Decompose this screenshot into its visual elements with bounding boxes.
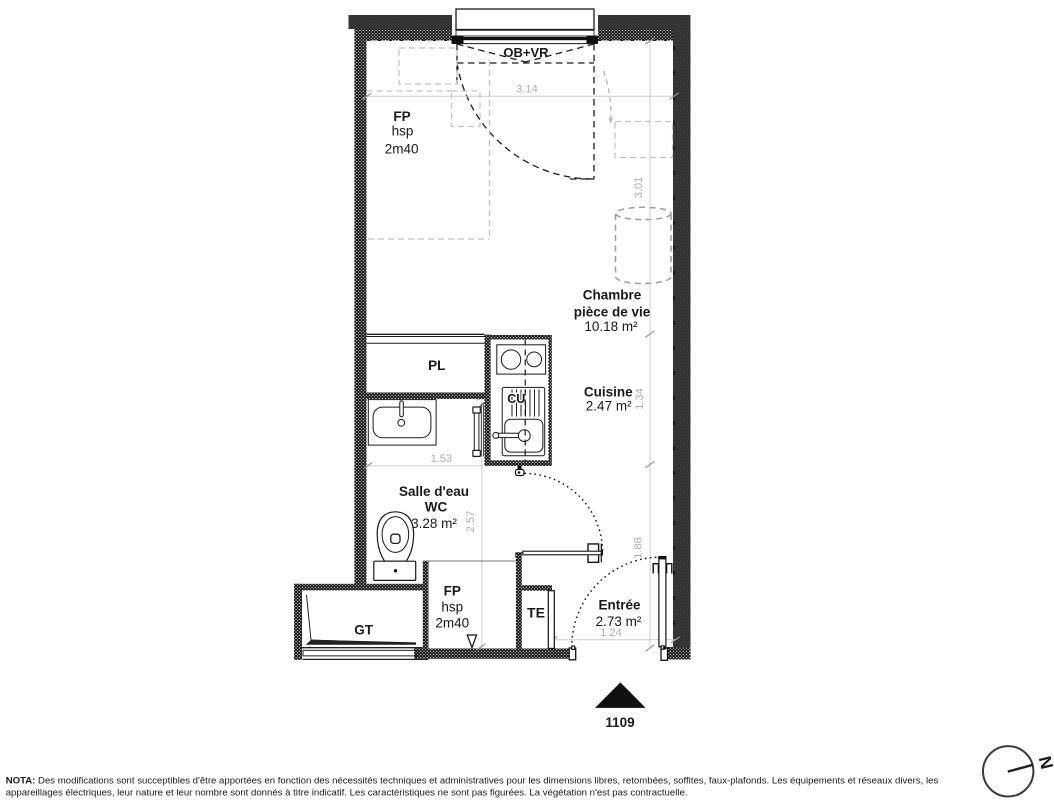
- svg-text:Cuisine: Cuisine: [584, 384, 633, 399]
- svg-text:hsp: hsp: [441, 599, 463, 614]
- svg-text:3.14: 3.14: [516, 84, 537, 96]
- svg-text:1.88: 1.88: [633, 537, 645, 558]
- svg-text:OB+VR: OB+VR: [503, 45, 549, 60]
- svg-text:PL: PL: [428, 358, 445, 373]
- svg-text:Chambre: Chambre: [583, 287, 642, 302]
- svg-text:2.57: 2.57: [465, 511, 477, 532]
- svg-text:10.18 m²: 10.18 m²: [584, 319, 638, 334]
- svg-text:2.73 m²: 2.73 m²: [596, 614, 642, 629]
- svg-text:hsp: hsp: [392, 124, 414, 139]
- svg-text:FP: FP: [444, 583, 461, 598]
- svg-text:2m40: 2m40: [385, 141, 419, 156]
- svg-text:Entrée: Entrée: [598, 598, 641, 613]
- svg-text:1.34: 1.34: [634, 388, 646, 409]
- svg-text:NOTA: Des modifications sont s: NOTA: Des modifications sont succeptible…: [6, 775, 939, 786]
- svg-text:appareillages électriques, leu: appareillages électriques, leur nature e…: [6, 788, 688, 799]
- svg-text:GT: GT: [354, 622, 374, 637]
- svg-text:TE: TE: [527, 605, 545, 621]
- svg-text:1.53: 1.53: [431, 453, 452, 465]
- svg-text:2.47 m²: 2.47 m²: [586, 398, 632, 413]
- svg-text:3.28 m²: 3.28 m²: [411, 516, 457, 531]
- svg-text:3.01: 3.01: [633, 177, 645, 198]
- svg-text:pièce de vie: pièce de vie: [574, 305, 651, 320]
- svg-text:CU: CU: [507, 392, 525, 406]
- svg-text:WC: WC: [425, 500, 448, 515]
- svg-text:1109: 1109: [605, 715, 634, 730]
- svg-text:Salle d'eau: Salle d'eau: [399, 484, 469, 499]
- svg-text:2m40: 2m40: [435, 616, 469, 631]
- svg-text:FP: FP: [393, 109, 410, 124]
